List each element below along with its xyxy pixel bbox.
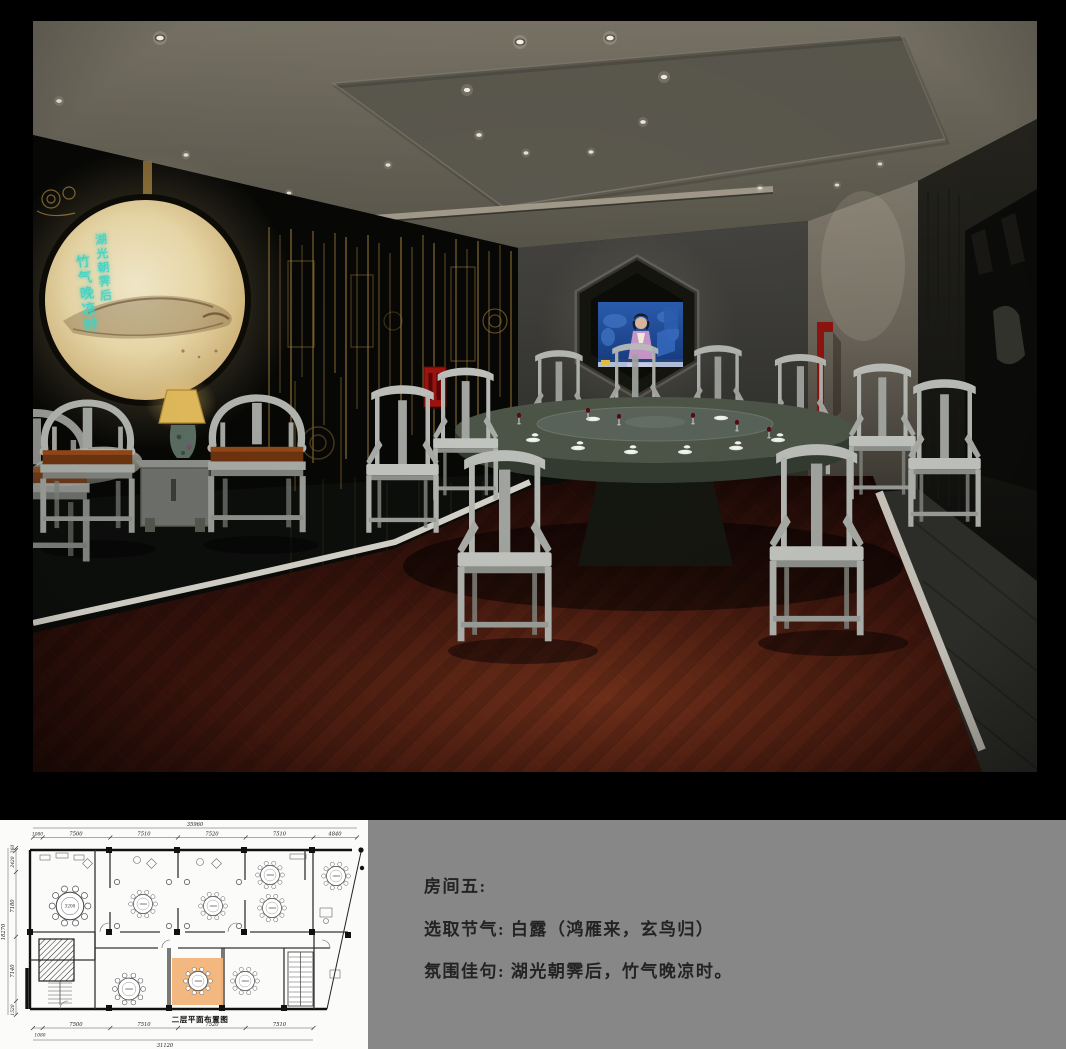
dim-bottom-overall: 31120 <box>157 1043 174 1049</box>
plan-table: 1600 <box>258 894 287 922</box>
caption-mood-verse: 氛围佳句: 湖光朝霁后，竹气晚凉时。 <box>424 957 733 982</box>
presentation-board: 湖光朝霁后 竹气晚凉时 <box>0 0 1066 1049</box>
plan-table-label: 1600 <box>194 979 202 983</box>
plan-table-label: 1800 <box>266 873 274 877</box>
plan-table-label: 1600 <box>139 902 147 906</box>
dim-bottom-1080: 1080 <box>34 1034 45 1039</box>
floor-plan-panel: 35960 1080 7500 7510 7520 7510 4840 <box>0 820 368 1049</box>
render-scene <box>33 21 1037 772</box>
dim-top-7500: 7500 <box>69 832 83 838</box>
plan-table-label: 2000 <box>125 987 133 991</box>
dim-bottom-7510b: 7510 <box>273 1022 287 1028</box>
caption-room-title: 房间五: <box>424 872 487 897</box>
dim-top-7510: 7510 <box>137 832 151 838</box>
dim-left-7140: 7140 <box>10 964 16 978</box>
plan-dimensions-top: 35960 1080 7500 7510 7520 7510 4840 <box>31 822 359 840</box>
plan-table-label: 1600 <box>209 904 217 908</box>
dim-top-1080: 1080 <box>32 833 43 838</box>
dim-bottom-7500: 7500 <box>69 1022 83 1028</box>
caption-panel: 房间五: 选取节气: 白露（鸿雁来，玄鸟归） 氛围佳句: 湖光朝霁后，竹气晚凉时… <box>368 820 1066 1049</box>
dim-top-7510b: 7510 <box>273 832 287 838</box>
dim-bottom-7520: 7520 <box>205 1022 219 1028</box>
caption-solar-term: 选取节气: 白露（鸿雁来，玄鸟归） <box>424 915 714 940</box>
plan-table-3200: 3200 <box>49 886 91 926</box>
vignette <box>33 21 1037 772</box>
plan-dimensions-bottom: 7500 7510 7520 7510 1080 31120 <box>31 1022 315 1049</box>
dim-top-overall: 35960 <box>187 822 204 828</box>
dim-left-7180: 7180 <box>10 899 16 913</box>
dim-left-260: 260 <box>11 845 16 855</box>
dining-room-render: 湖光朝霁后 竹气晚凉时 <box>33 21 1037 772</box>
plan-table-label: 3200 <box>65 904 76 909</box>
plan-table: 1800 <box>231 967 260 995</box>
dim-bottom-7510: 7510 <box>137 1022 151 1028</box>
dim-left-1520: 1520 <box>11 1004 16 1015</box>
dim-left-overall: 18270 <box>1 923 7 940</box>
floor-plan-drawing: 35960 1080 7500 7510 7520 7510 4840 <box>0 820 368 1049</box>
plan-table: 2000 <box>112 973 145 1005</box>
plan-table: 1600 <box>199 892 228 920</box>
plan-table: 1800 <box>256 861 285 889</box>
plan-title: 二层平面布置图 <box>172 1014 229 1024</box>
plan-table-label: 1600 <box>268 906 276 910</box>
dim-left-2420: 2420 <box>11 856 16 868</box>
plan-dimensions-left: 260 2420 7180 7140 1520 18270 <box>1 845 18 1017</box>
dim-top-7520: 7520 <box>205 832 219 838</box>
plan-table-label: 1800 <box>241 979 249 983</box>
dim-top-4840: 4840 <box>327 832 342 838</box>
plan-table: 1600 <box>129 890 158 918</box>
plan-table: 1800 <box>322 862 351 890</box>
plan-table-label: 1800 <box>332 874 340 878</box>
